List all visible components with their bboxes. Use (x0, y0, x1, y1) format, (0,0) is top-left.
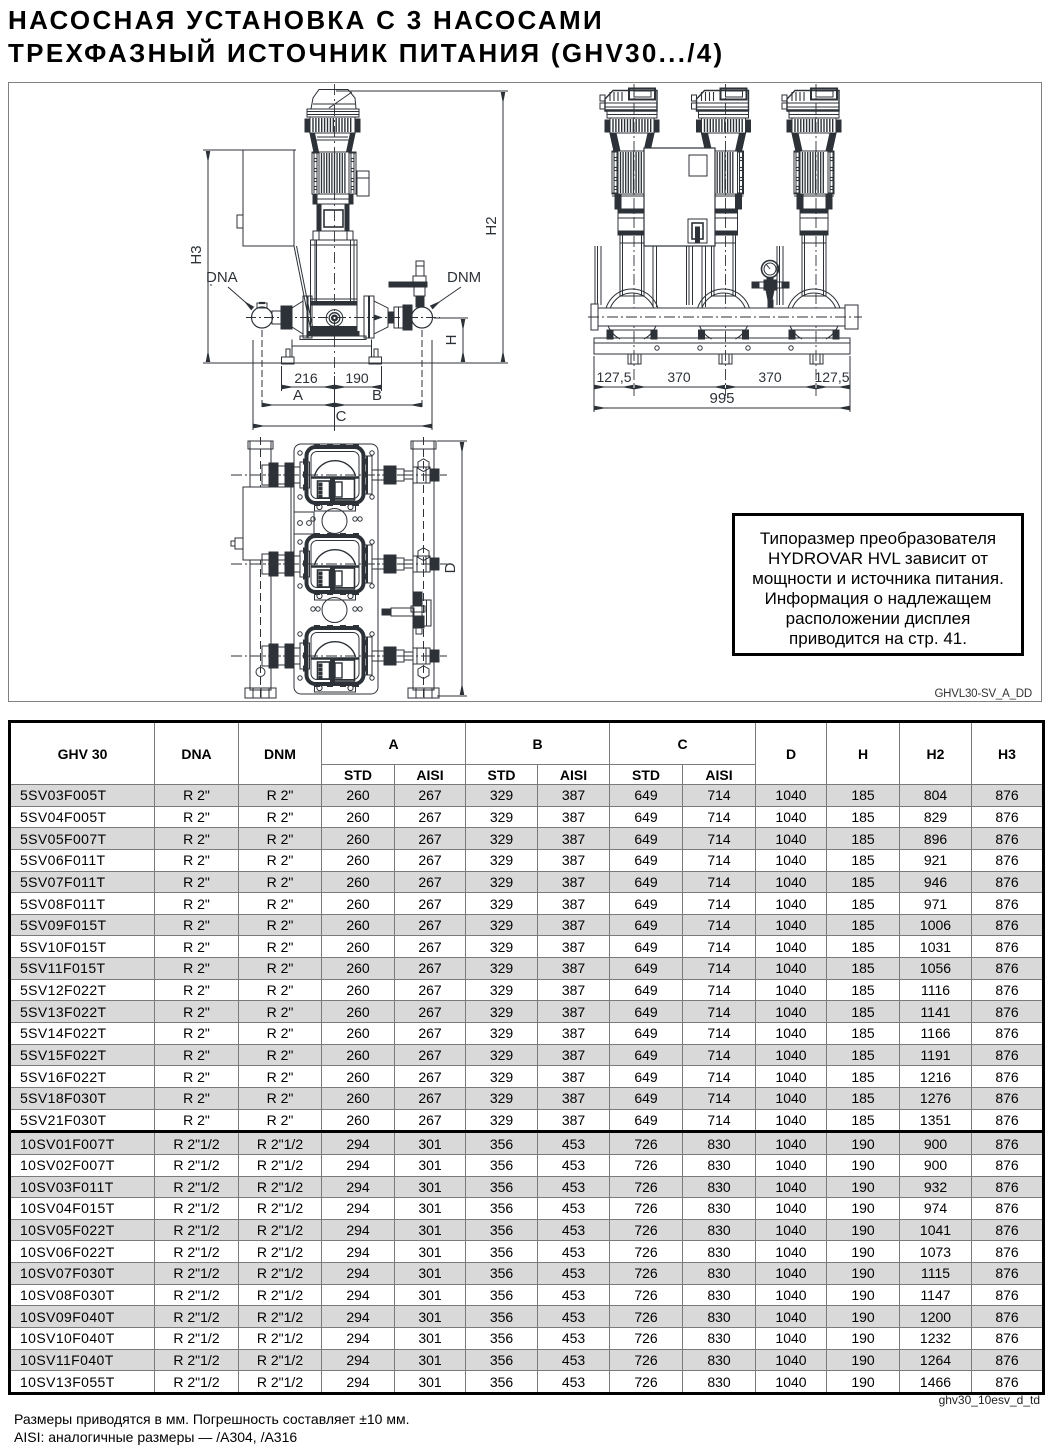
svg-text:995: 995 (709, 390, 734, 407)
svg-text:216: 216 (294, 370, 318, 386)
svg-text:GHVL30-SV_A_DD: GHVL30-SV_A_DD (934, 688, 1032, 700)
svg-text:DNM: DNM (447, 269, 481, 286)
svg-text:DNA: DNA (206, 269, 238, 286)
svg-text:D: D (442, 562, 459, 573)
svg-text:B: B (372, 387, 382, 404)
svg-text:370: 370 (667, 369, 691, 385)
svg-text:H: H (443, 335, 460, 346)
svg-text:A: A (293, 387, 303, 404)
svg-text:190: 190 (345, 370, 369, 386)
svg-text:127,5: 127,5 (596, 369, 631, 385)
svg-text:370: 370 (758, 369, 782, 385)
svg-text:127,5: 127,5 (814, 369, 849, 385)
svg-text:H3: H3 (188, 245, 205, 264)
svg-text:C: C (336, 408, 347, 425)
svg-text:H2: H2 (483, 216, 500, 235)
